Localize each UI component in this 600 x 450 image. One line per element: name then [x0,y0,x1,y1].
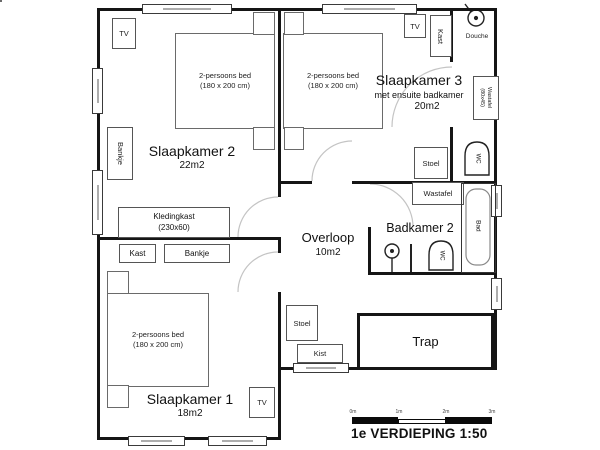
shower2-icon [385,244,411,272]
scale-bar-segment [352,417,398,424]
room-label-overloop: Overloop [302,230,355,245]
wall-ensuite-b [450,127,453,181]
wall-center-vertical-a [278,8,281,197]
bed-slaapkamer3: 2-persoons bed (180 x 200 cm) [283,33,383,129]
wastafel-ensuite: Wastafel (80x45) [473,76,499,120]
window [142,4,232,14]
douche-label: Douche [466,33,488,40]
nightstand [284,127,304,150]
bed-slaapkamer2 [0,0,2,2]
nightstand [253,127,275,150]
scale-tick-0m: 0m [350,409,357,415]
room-area-overloop: 10m2 [315,247,340,258]
stoel-overloop: Stoel [286,305,318,341]
room-area-slaapkamer3: 20m2 [414,101,439,112]
bad-label: Bad [468,216,488,236]
floor-plan: TV Bankje 2-persoons bed (180 x 200 cm) … [0,0,600,450]
tv-slaapkamer1: TV [249,387,275,418]
window [322,4,417,14]
scale-tick-1m: 1m [396,409,403,415]
scale-tick-3m: 3m [489,409,496,415]
window [208,436,267,446]
nightstand [284,12,304,35]
window [92,68,103,114]
room-label-slaapkamer1: Slaapkamer 1 [147,391,233,407]
room-area-slaapkamer1: 18m2 [177,408,202,419]
window [293,363,349,373]
kist-overloop: Kist [297,344,343,363]
wc-badkamer2-label: WC [429,245,453,267]
wall-center-vertical-c [278,292,281,440]
wall-badkamer2-left [368,227,371,275]
room-area-slaapkamer2: 22m2 [179,160,204,171]
bankje-slaapkamer1: Bankje [164,244,230,263]
room-label-slaapkamer2: Slaapkamer 2 [149,143,235,159]
stoel-slaapkamer3: Stoel [414,147,448,179]
nightstand [107,271,129,294]
tv-slaapkamer3: TV [404,14,426,38]
kledingkast-slaapkamer2: Kledingkast (230x60) [118,207,230,238]
scale-bar-segment [398,419,446,424]
room-label-slaapkamer3: Slaapkamer 3 [376,72,462,88]
nightstand [107,385,129,408]
staircase: Trap [357,313,494,370]
bankje-slaapkamer2: Bankje [107,127,133,180]
window [92,170,103,235]
tv-slaapkamer2: TV [112,18,136,49]
scale-bar-segment [445,417,492,424]
nightstand [253,12,275,35]
wastafel-badkamer2: Wastafel [412,182,464,205]
kast-slaapkamer3: Kast [430,15,452,57]
wall-sk3-overloop-a [278,181,312,184]
window [128,436,185,446]
window [491,278,502,310]
kast-slaapkamer1: Kast [119,244,156,263]
room-label-badkamer2: Badkamer 2 [386,221,453,235]
scale-tick-2m: 2m [443,409,450,415]
plan-title: 1e VERDIEPING 1:50 [351,426,487,441]
wc-ensuite-label: WC [465,147,489,171]
bed-slaapkamer1: 2-persoons bed (180 x 200 cm) [107,293,209,387]
bed-slaapkamer2: 2-persoons bed (180 x 200 cm) [175,33,275,129]
room-subtitle-slaapkamer3: met ensuite badkamer [374,90,463,100]
